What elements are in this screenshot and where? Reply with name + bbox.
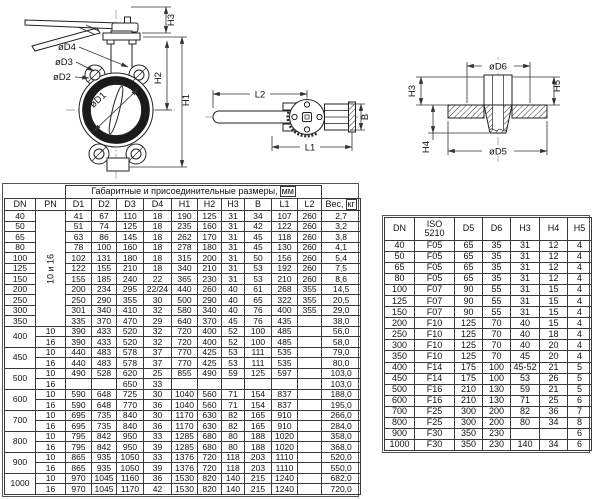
table-cell: 36 <box>144 400 172 411</box>
table-cell: 358,0 <box>322 431 361 442</box>
table-cell: 80 <box>222 442 245 453</box>
table-cell: 33 <box>144 452 172 463</box>
table-cell: 61 <box>245 284 272 295</box>
table-cell <box>92 379 117 390</box>
table-cell: 39 <box>144 442 172 453</box>
table-cell <box>298 421 322 432</box>
table-cell <box>298 326 322 337</box>
table-cell: 125 <box>117 221 144 232</box>
table-cell: 695 <box>66 410 92 421</box>
column-header: H2 <box>198 198 222 211</box>
table-cell: 295 <box>117 284 144 295</box>
table-cell: 340 <box>198 305 222 316</box>
table-cell: 520 <box>117 326 144 337</box>
table-cell: 34 <box>540 417 568 428</box>
column-header: D6 <box>483 218 511 241</box>
table-cell: 31 <box>222 221 245 232</box>
table-cell: 435 <box>272 316 298 327</box>
table-cell: 10 <box>36 452 66 463</box>
table-cell: 290 <box>198 295 222 306</box>
table-cell: 720 <box>172 326 198 337</box>
table-cell: 50 <box>5 221 36 232</box>
table-cell: 33 <box>144 379 172 390</box>
table-cell: 720,0 <box>322 484 361 495</box>
table-cell <box>298 337 322 348</box>
table-cell: 203 <box>245 452 272 463</box>
table-cell <box>298 400 322 411</box>
table-cell: 165 <box>245 410 272 421</box>
flange-plate <box>448 105 484 118</box>
table-cell: 59 <box>511 384 540 395</box>
table-cell: 322 <box>272 295 298 306</box>
table-cell: 16 <box>36 421 66 432</box>
table-cell: 31 <box>222 263 245 274</box>
table-cell: 770 <box>172 347 198 358</box>
table-cell: 36 <box>144 473 172 484</box>
table-cell: 680 <box>198 442 222 453</box>
table-cell <box>298 452 322 463</box>
table-cell: 425 <box>198 358 222 369</box>
table-row: 40010390433520327204005210048556,0 <box>5 326 361 337</box>
table-row: 65F05653531124 <box>385 263 592 274</box>
table-cell: 400 <box>5 326 36 347</box>
table-cell: 42 <box>144 484 172 495</box>
table-cell: 970 <box>66 473 92 484</box>
table-cell: 70 <box>483 351 511 362</box>
table-cell: 210 <box>117 263 144 274</box>
column-header: H1 <box>172 198 198 211</box>
table-cell: 18 <box>144 232 172 243</box>
table-cell: 490 <box>66 368 92 379</box>
table-cell: 597 <box>272 368 298 379</box>
table-cell: 900 <box>5 452 36 473</box>
table-cell: 33 <box>144 431 172 442</box>
table-cell: 55 <box>483 296 511 307</box>
table-cell: 170 <box>198 232 222 243</box>
table-cell: 284,0 <box>322 421 361 432</box>
table-cell: 35 <box>483 263 511 274</box>
table-cell: 200 <box>66 284 92 295</box>
table-row: 200F101257040154 <box>385 318 592 329</box>
table-cell: 160 <box>198 221 222 232</box>
table-cell: 40 <box>5 211 36 222</box>
table-row: 300F101257040204 <box>385 340 592 351</box>
table-cell: F07 <box>415 285 455 296</box>
table-cell: 100 <box>483 373 511 384</box>
table-cell: 1020 <box>272 431 298 442</box>
column-header: D3 <box>117 198 144 211</box>
table-cell: 125 <box>455 351 483 362</box>
table-cell: 40 <box>511 329 540 340</box>
table-cell: 1110 <box>272 452 298 463</box>
table-cell: 842 <box>92 442 117 453</box>
table-cell: 950 <box>117 431 144 442</box>
table-cell: 130 <box>483 395 511 406</box>
table-cell: 70 <box>483 340 511 351</box>
dim-label-h4: H4 <box>421 141 432 153</box>
table-cell: 65 <box>245 295 272 306</box>
table-cell: 350 <box>5 316 36 327</box>
table-cell: 340 <box>92 305 117 316</box>
table-cell: 18 <box>144 221 172 232</box>
table-cell: 720 <box>172 337 198 348</box>
table-cell: 1045 <box>92 484 117 495</box>
table-cell: 71 <box>511 395 540 406</box>
table1-header-row: DNPND1D2D3D4H1H2H3BL1L2Вес,кг <box>5 198 361 211</box>
table-cell: 15 <box>540 318 568 329</box>
table-cell: 260 <box>298 253 322 264</box>
table-cell: 38,0 <box>322 316 361 327</box>
table-row: 1000F30350230140346 <box>385 439 592 450</box>
table-cell: 4 <box>568 351 592 362</box>
table-cell: F25 <box>415 406 455 417</box>
table-cell: 56,0 <box>322 326 361 337</box>
table-cell <box>298 316 322 327</box>
table-cell: 79,0 <box>322 347 361 358</box>
table-cell: 520,0 <box>322 452 361 463</box>
table-cell <box>298 347 322 358</box>
table-cell: 250 <box>385 329 415 340</box>
table-cell: 315 <box>172 253 198 264</box>
table-cell: 800 <box>385 417 415 428</box>
table-cell: 50 <box>385 252 415 263</box>
table-cell: 20 <box>540 351 568 362</box>
table-cell: 210 <box>272 274 298 285</box>
table-cell: 90 <box>455 285 483 296</box>
table-cell: 590 <box>66 400 92 411</box>
table-cell: 425 <box>198 347 222 358</box>
table-cell: 16 <box>36 442 66 453</box>
table-cell: 111 <box>245 358 272 369</box>
table-cell: 125 <box>245 368 272 379</box>
table-cell: 483 <box>92 358 117 369</box>
column-header: D4 <box>144 198 172 211</box>
table-cell: 10 <box>36 347 66 358</box>
table-cell <box>222 379 245 390</box>
table-cell: 37 <box>144 347 172 358</box>
table-cell: 440 <box>66 347 92 358</box>
table-cell: 200 <box>483 406 511 417</box>
table-cell: 840 <box>117 421 144 432</box>
table-cell <box>511 428 540 439</box>
table-cell: 580 <box>172 305 198 316</box>
table-row: 45010440483578377704255311153579,0 <box>5 347 361 358</box>
column-header: ISO5210 <box>415 218 455 241</box>
table-cell: 59 <box>222 368 245 379</box>
table-cell: 107 <box>272 211 298 222</box>
table-cell: 260 <box>298 232 322 243</box>
table-row: 9001086593510503313767201182031110520,0 <box>5 452 361 463</box>
table-cell: 7,5 <box>322 263 361 274</box>
table-cell: 34 <box>245 211 272 222</box>
table-cell: 118 <box>222 452 245 463</box>
table-row: 125F07905531154 <box>385 296 592 307</box>
table-cell: 1110 <box>272 463 298 474</box>
table-row: 800F2530020080348 <box>385 417 592 428</box>
table-cell: 34 <box>540 439 568 450</box>
table-cell: 31 <box>222 232 245 243</box>
table-cell: 500 <box>172 295 198 306</box>
table-cell <box>298 379 322 390</box>
dim-label-b: B <box>360 114 371 120</box>
table-cell: 6 <box>568 395 592 406</box>
table-cell: 53 <box>245 274 272 285</box>
table-cell: 130 <box>272 242 298 253</box>
table-cell: 370 <box>92 316 117 327</box>
table-row: 400F1417510045-52215 <box>385 362 592 373</box>
table-cell: 630 <box>198 421 222 432</box>
table-row: 100010970104511603615308201402151240682,… <box>5 473 361 484</box>
table-cell: 500 <box>5 368 36 389</box>
table-cell: 65 <box>455 241 483 252</box>
table-cell: 31 <box>511 296 540 307</box>
table-cell: 180 <box>198 242 222 253</box>
table-cell: 720 <box>198 452 222 463</box>
table-row: 1669573584036117063082165910284,0 <box>5 421 361 432</box>
table-cell: 935 <box>92 463 117 474</box>
table-cell: 235 <box>172 221 198 232</box>
table-cell: 35 <box>483 252 511 263</box>
table-cell: 45-52 <box>511 362 540 373</box>
table-cell: 648 <box>92 389 117 400</box>
iso-flange-table: DNISO5210D5D6H3H4H5 40F0565353112450F056… <box>384 217 592 451</box>
table-cell: 1170 <box>172 410 198 421</box>
table-cell: 12 <box>540 263 568 274</box>
table-cell: 600 <box>5 389 36 410</box>
table-cell: 155 <box>92 263 117 274</box>
table-cell: 300 <box>5 305 36 316</box>
table-cell: 65 <box>385 263 415 274</box>
table-cell: 300 <box>455 417 483 428</box>
table-cell: 400 <box>385 362 415 373</box>
table-cell: 210 <box>455 384 483 395</box>
table-cell: 234 <box>92 284 117 295</box>
table-cell: 8 <box>568 417 592 428</box>
table-cell: 90 <box>455 296 483 307</box>
table-cell: 1530 <box>172 484 198 495</box>
table-cell: 4 <box>568 285 592 296</box>
table-cell: 102 <box>66 253 92 264</box>
table-cell: 90 <box>455 307 483 318</box>
dimensions-table: Габаритные и присоединительные размеры,м… <box>4 185 361 495</box>
table-cell: 55 <box>483 285 511 296</box>
table-cell: 31 <box>511 241 540 252</box>
table-cell: 36 <box>144 421 172 432</box>
table-cell: F16 <box>415 395 455 406</box>
table-cell: 500 <box>385 384 415 395</box>
dim-label-sec-h3: H3 <box>407 85 418 97</box>
table-cell: 192 <box>272 263 298 274</box>
table-cell: 51 <box>66 221 92 232</box>
table-cell: 20,5 <box>322 295 361 306</box>
table-cell: 100 <box>92 242 117 253</box>
table-cell: 520 <box>117 337 144 348</box>
valve-front-view: øD1 øD4 øD3 øD2 H3 H1 H2 <box>25 7 192 181</box>
table-cell: 1040 <box>172 400 198 411</box>
table-cell: 483 <box>92 347 117 358</box>
table-cell: 53 <box>222 347 245 358</box>
table-cell: 76 <box>245 305 272 316</box>
table-cell: 300 <box>455 406 483 417</box>
table-cell: 29 <box>144 316 172 327</box>
table-cell: 4,1 <box>322 242 361 253</box>
table-cell: 30 <box>144 389 172 400</box>
table-cell: 65 <box>5 232 36 243</box>
table-cell: 1160 <box>117 473 144 484</box>
table-cell: 31 <box>511 274 540 285</box>
table-cell: 230 <box>483 439 511 450</box>
table-cell: 41 <box>66 211 92 222</box>
table-cell: 485 <box>272 326 298 337</box>
table-cell: 770 <box>117 400 144 411</box>
table-cell: F14 <box>415 362 455 373</box>
table-cell: 65 <box>455 263 483 274</box>
table-cell: 260 <box>298 211 322 222</box>
table-cell: F30 <box>415 439 455 450</box>
datasheet-page: { "drawing_labels": { "front": { "oD4": … <box>0 0 600 500</box>
table-cell: 10 <box>36 473 66 484</box>
table-cell: 842 <box>92 431 117 442</box>
table-cell: 700 <box>5 410 36 431</box>
table-cell: 250 <box>66 295 92 306</box>
table-cell: 528 <box>92 368 117 379</box>
table-cell: 160 <box>117 242 144 253</box>
table-cell: F07 <box>415 307 455 318</box>
table-cell: 22/24 <box>144 284 172 295</box>
table-cell: 175 <box>455 373 483 384</box>
table-cell: 1170 <box>117 484 144 495</box>
table-cell: 16 <box>36 337 66 348</box>
table-cell: 450 <box>385 373 415 384</box>
table-cell: 31 <box>511 285 540 296</box>
table-cell: 820 <box>198 473 222 484</box>
table-row: 16795842950391285680801881020368,0 <box>5 442 361 453</box>
table-cell: 1376 <box>172 463 198 474</box>
column-header: DN <box>5 198 36 211</box>
dim-label-d6: øD6 <box>489 62 507 73</box>
table-cell: 40 <box>222 284 245 295</box>
table-cell: 290 <box>92 295 117 306</box>
table-cell: 40 <box>385 241 415 252</box>
table-cell: 837 <box>272 389 298 400</box>
table-cell: 110 <box>117 211 144 222</box>
table-cell: 368,0 <box>322 442 361 453</box>
table-cell: 45 <box>245 242 272 253</box>
table-cell: 900 <box>385 428 415 439</box>
table-cell: 1000 <box>5 473 36 494</box>
table-cell: 55 <box>483 307 511 318</box>
table-cell <box>540 428 568 439</box>
table-cell: 16 <box>36 400 66 411</box>
table-cell: 103,0 <box>322 368 361 379</box>
table-cell: 20 <box>540 340 568 351</box>
table-cell: 260 <box>298 221 322 232</box>
table-cell: 70 <box>483 329 511 340</box>
table-cell: 45 <box>245 232 272 243</box>
table-cell: 16 <box>36 484 66 495</box>
table-cell: 240 <box>117 274 144 285</box>
table-cell: 450 <box>5 347 36 368</box>
table-cell: 335 <box>66 316 92 327</box>
table-cell <box>298 368 322 379</box>
table-cell <box>198 379 222 390</box>
table-cell: 103,0 <box>322 379 361 390</box>
table-cell: 40 <box>511 318 540 329</box>
table-cell: 1170 <box>172 421 198 432</box>
table-cell: 600 <box>385 395 415 406</box>
table-cell: 278 <box>172 242 198 253</box>
table-cell: 410 <box>117 305 144 316</box>
table-cell: 1285 <box>172 431 198 442</box>
table-cell: 355 <box>298 284 322 295</box>
table-cell <box>298 442 322 453</box>
table-cell: 262 <box>172 232 198 243</box>
table-cell: 820 <box>198 484 222 495</box>
flange-section-view: øD6 øD5 H3 H4 H5 <box>407 57 563 163</box>
table-row: 80F05653531124 <box>385 274 592 285</box>
table-cell: 365 <box>172 274 198 285</box>
table-cell: 355 <box>117 295 144 306</box>
table-cell: F10 <box>415 329 455 340</box>
table-cell: 490 <box>198 368 222 379</box>
table-cell: 390 <box>66 337 92 348</box>
table-cell: 52 <box>222 337 245 348</box>
table-cell: 400 <box>272 305 298 316</box>
table-cell: 37 <box>144 358 172 369</box>
table-cell: 100 <box>385 285 415 296</box>
table-cell: 131 <box>92 253 117 264</box>
table-cell <box>298 410 322 421</box>
table-cell: 340 <box>172 263 198 274</box>
table-cell: 32 <box>144 337 172 348</box>
table-cell: 80,0 <box>322 358 361 369</box>
table-cell: 31 <box>222 253 245 264</box>
table-cell: 230 <box>198 274 222 285</box>
table-cell: 735 <box>92 421 117 432</box>
table-cell: 100 <box>5 253 36 264</box>
column-header: D5 <box>455 218 483 241</box>
table-cell <box>298 358 322 369</box>
table-cell: 840 <box>117 410 144 421</box>
table-cell: 71 <box>222 389 245 400</box>
table-cell: 4 <box>568 274 592 285</box>
table-cell: 560 <box>198 389 222 400</box>
table-cell: 154 <box>245 400 272 411</box>
table-cell: 620 <box>117 368 144 379</box>
table-cell: 935 <box>92 452 117 463</box>
table-cell: 140 <box>511 439 540 450</box>
table-row: 1659064877036104056071154837195,0 <box>5 400 361 411</box>
table-cell: 29,0 <box>322 305 361 316</box>
table-row: 40F05653531124 <box>385 241 592 252</box>
table-cell: 1045 <box>92 473 117 484</box>
table-cell: 80 <box>222 431 245 442</box>
table-cell: 78 <box>66 242 92 253</box>
table-cell: 35 <box>483 241 511 252</box>
table-cell: F05 <box>415 252 455 263</box>
table-cell: 4 <box>568 296 592 307</box>
column-header: H3 <box>511 218 540 241</box>
table1-title-text: Габаритные и присоединительные размеры, <box>91 186 277 196</box>
table-cell: 14,5 <box>322 284 361 295</box>
column-header: PN <box>36 198 66 211</box>
table-cell: 195,0 <box>322 400 361 411</box>
table-cell: 5,4 <box>322 253 361 264</box>
table-cell: 12 <box>540 274 568 285</box>
table-cell: 200 <box>5 284 36 295</box>
table-cell: 122 <box>66 263 92 274</box>
spacer-cell <box>5 186 66 199</box>
